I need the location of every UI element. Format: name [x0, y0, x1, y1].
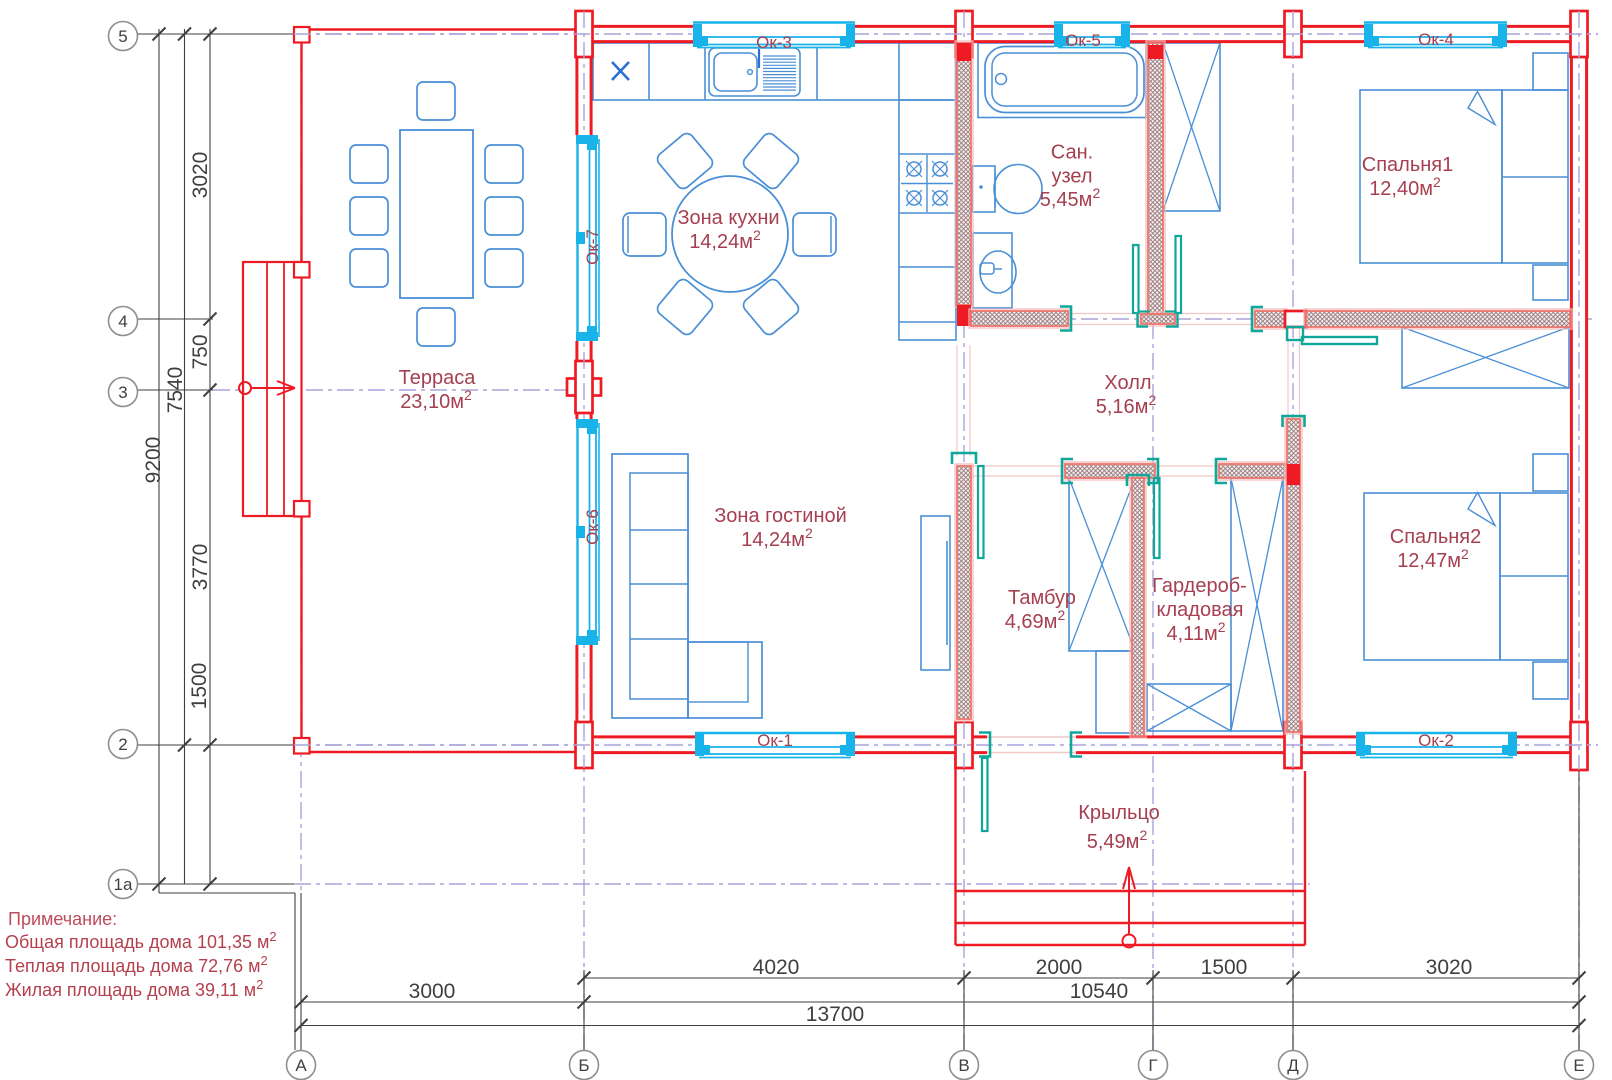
svg-text:3020: 3020 [1426, 956, 1473, 979]
svg-text:Зона гостиной: Зона гостиной [714, 505, 847, 527]
svg-text:Общая площадь дома 101,35 м2: Общая площадь дома 101,35 м2 [5, 929, 277, 952]
svg-text:2000: 2000 [1036, 956, 1083, 979]
svg-text:7540: 7540 [164, 367, 187, 414]
svg-text:4: 4 [118, 312, 127, 331]
svg-text:Жилая площадь дома 39,11 м2: Жилая площадь дома 39,11 м2 [5, 977, 263, 1000]
svg-text:3770: 3770 [189, 544, 212, 591]
svg-text:Теплая площадь дома 72,76 м2: Теплая площадь дома 72,76 м2 [5, 953, 268, 976]
svg-text:Ок-7: Ок-7 [583, 229, 602, 265]
svg-text:5,49м2: 5,49м2 [1087, 827, 1148, 853]
svg-text:3020: 3020 [189, 152, 212, 199]
svg-text:12,47м2: 12,47м2 [1397, 546, 1469, 572]
svg-text:4020: 4020 [753, 956, 800, 979]
svg-text:Зона кухни: Зона кухни [677, 207, 779, 229]
svg-text:Холл: Холл [1104, 372, 1151, 394]
svg-text:5,45м2: 5,45м2 [1040, 185, 1101, 211]
svg-text:1а: 1а [114, 875, 133, 894]
svg-text:кладовая: кладовая [1157, 599, 1244, 621]
svg-text:В: В [958, 1056, 969, 1075]
svg-text:5,16м2: 5,16м2 [1096, 392, 1157, 418]
svg-text:Ок-2: Ок-2 [1418, 731, 1454, 750]
svg-text:Тамбур: Тамбур [1008, 587, 1076, 609]
svg-text:14,24м2: 14,24м2 [741, 525, 813, 551]
svg-text:5: 5 [118, 27, 127, 46]
svg-text:1500: 1500 [188, 663, 211, 710]
svg-text:Е: Е [1573, 1056, 1584, 1075]
svg-text:Б: Б [578, 1056, 589, 1075]
svg-text:3000: 3000 [409, 980, 456, 1003]
svg-text:9200: 9200 [142, 437, 165, 484]
svg-text:14,24м2: 14,24м2 [689, 227, 761, 253]
svg-text:1500: 1500 [1201, 956, 1248, 979]
svg-text:узел: узел [1051, 166, 1092, 188]
svg-text:3: 3 [118, 383, 127, 402]
svg-text:Ок-4: Ок-4 [1418, 30, 1454, 49]
svg-text:750: 750 [189, 334, 212, 369]
svg-text:10540: 10540 [1070, 980, 1128, 1003]
svg-text:2: 2 [118, 735, 127, 754]
svg-text:23,10м2: 23,10м2 [400, 387, 472, 413]
svg-text:Ок-3: Ок-3 [756, 33, 792, 52]
svg-text:12,40м2: 12,40м2 [1369, 174, 1441, 200]
svg-text:Ок-6: Ок-6 [583, 509, 602, 545]
svg-text:Г: Г [1148, 1056, 1157, 1075]
svg-text:Сан.: Сан. [1051, 142, 1093, 164]
svg-text:Ок-1: Ок-1 [757, 731, 793, 750]
svg-text:Терраса: Терраса [399, 367, 477, 389]
svg-text:4,11м2: 4,11м2 [1167, 619, 1226, 645]
svg-text:Крыльцо: Крыльцо [1078, 802, 1160, 824]
svg-text:Ок-5: Ок-5 [1065, 31, 1101, 50]
svg-text:Примечание:: Примечание: [8, 909, 117, 929]
svg-text:А: А [295, 1056, 307, 1075]
svg-text:Д: Д [1287, 1056, 1299, 1075]
svg-text:4,69м2: 4,69м2 [1005, 607, 1066, 633]
svg-text:Гардероб-: Гардероб- [1152, 575, 1247, 597]
svg-text:Спальня2: Спальня2 [1390, 526, 1481, 548]
svg-text:Спальня1: Спальня1 [1362, 154, 1453, 176]
svg-text:13700: 13700 [806, 1003, 864, 1026]
